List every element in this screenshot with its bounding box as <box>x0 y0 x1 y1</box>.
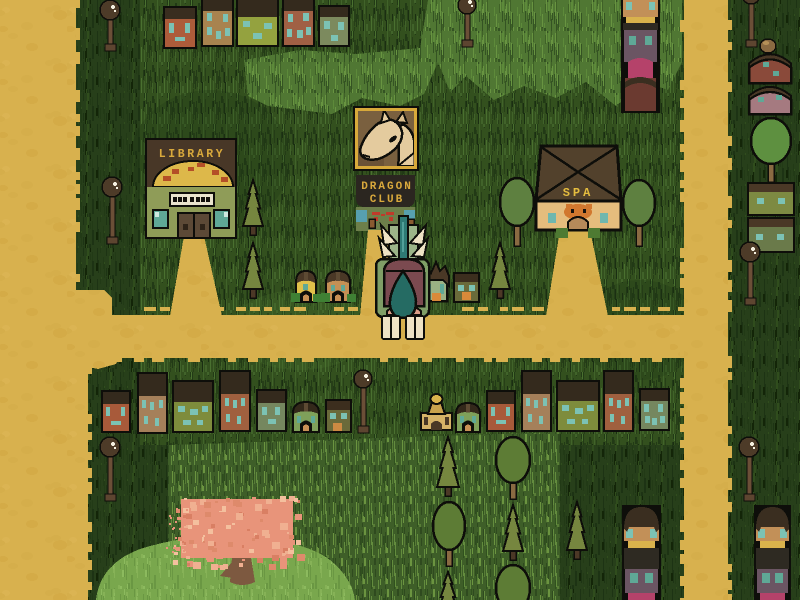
svg-text:CLUB: CLUB <box>370 194 404 206</box>
svg-text:LIBRARY: LIBRARY <box>159 148 226 161</box>
svg-text:DRAGON: DRAGON <box>361 181 413 193</box>
svg-text:SPA: SPA <box>563 186 594 200</box>
